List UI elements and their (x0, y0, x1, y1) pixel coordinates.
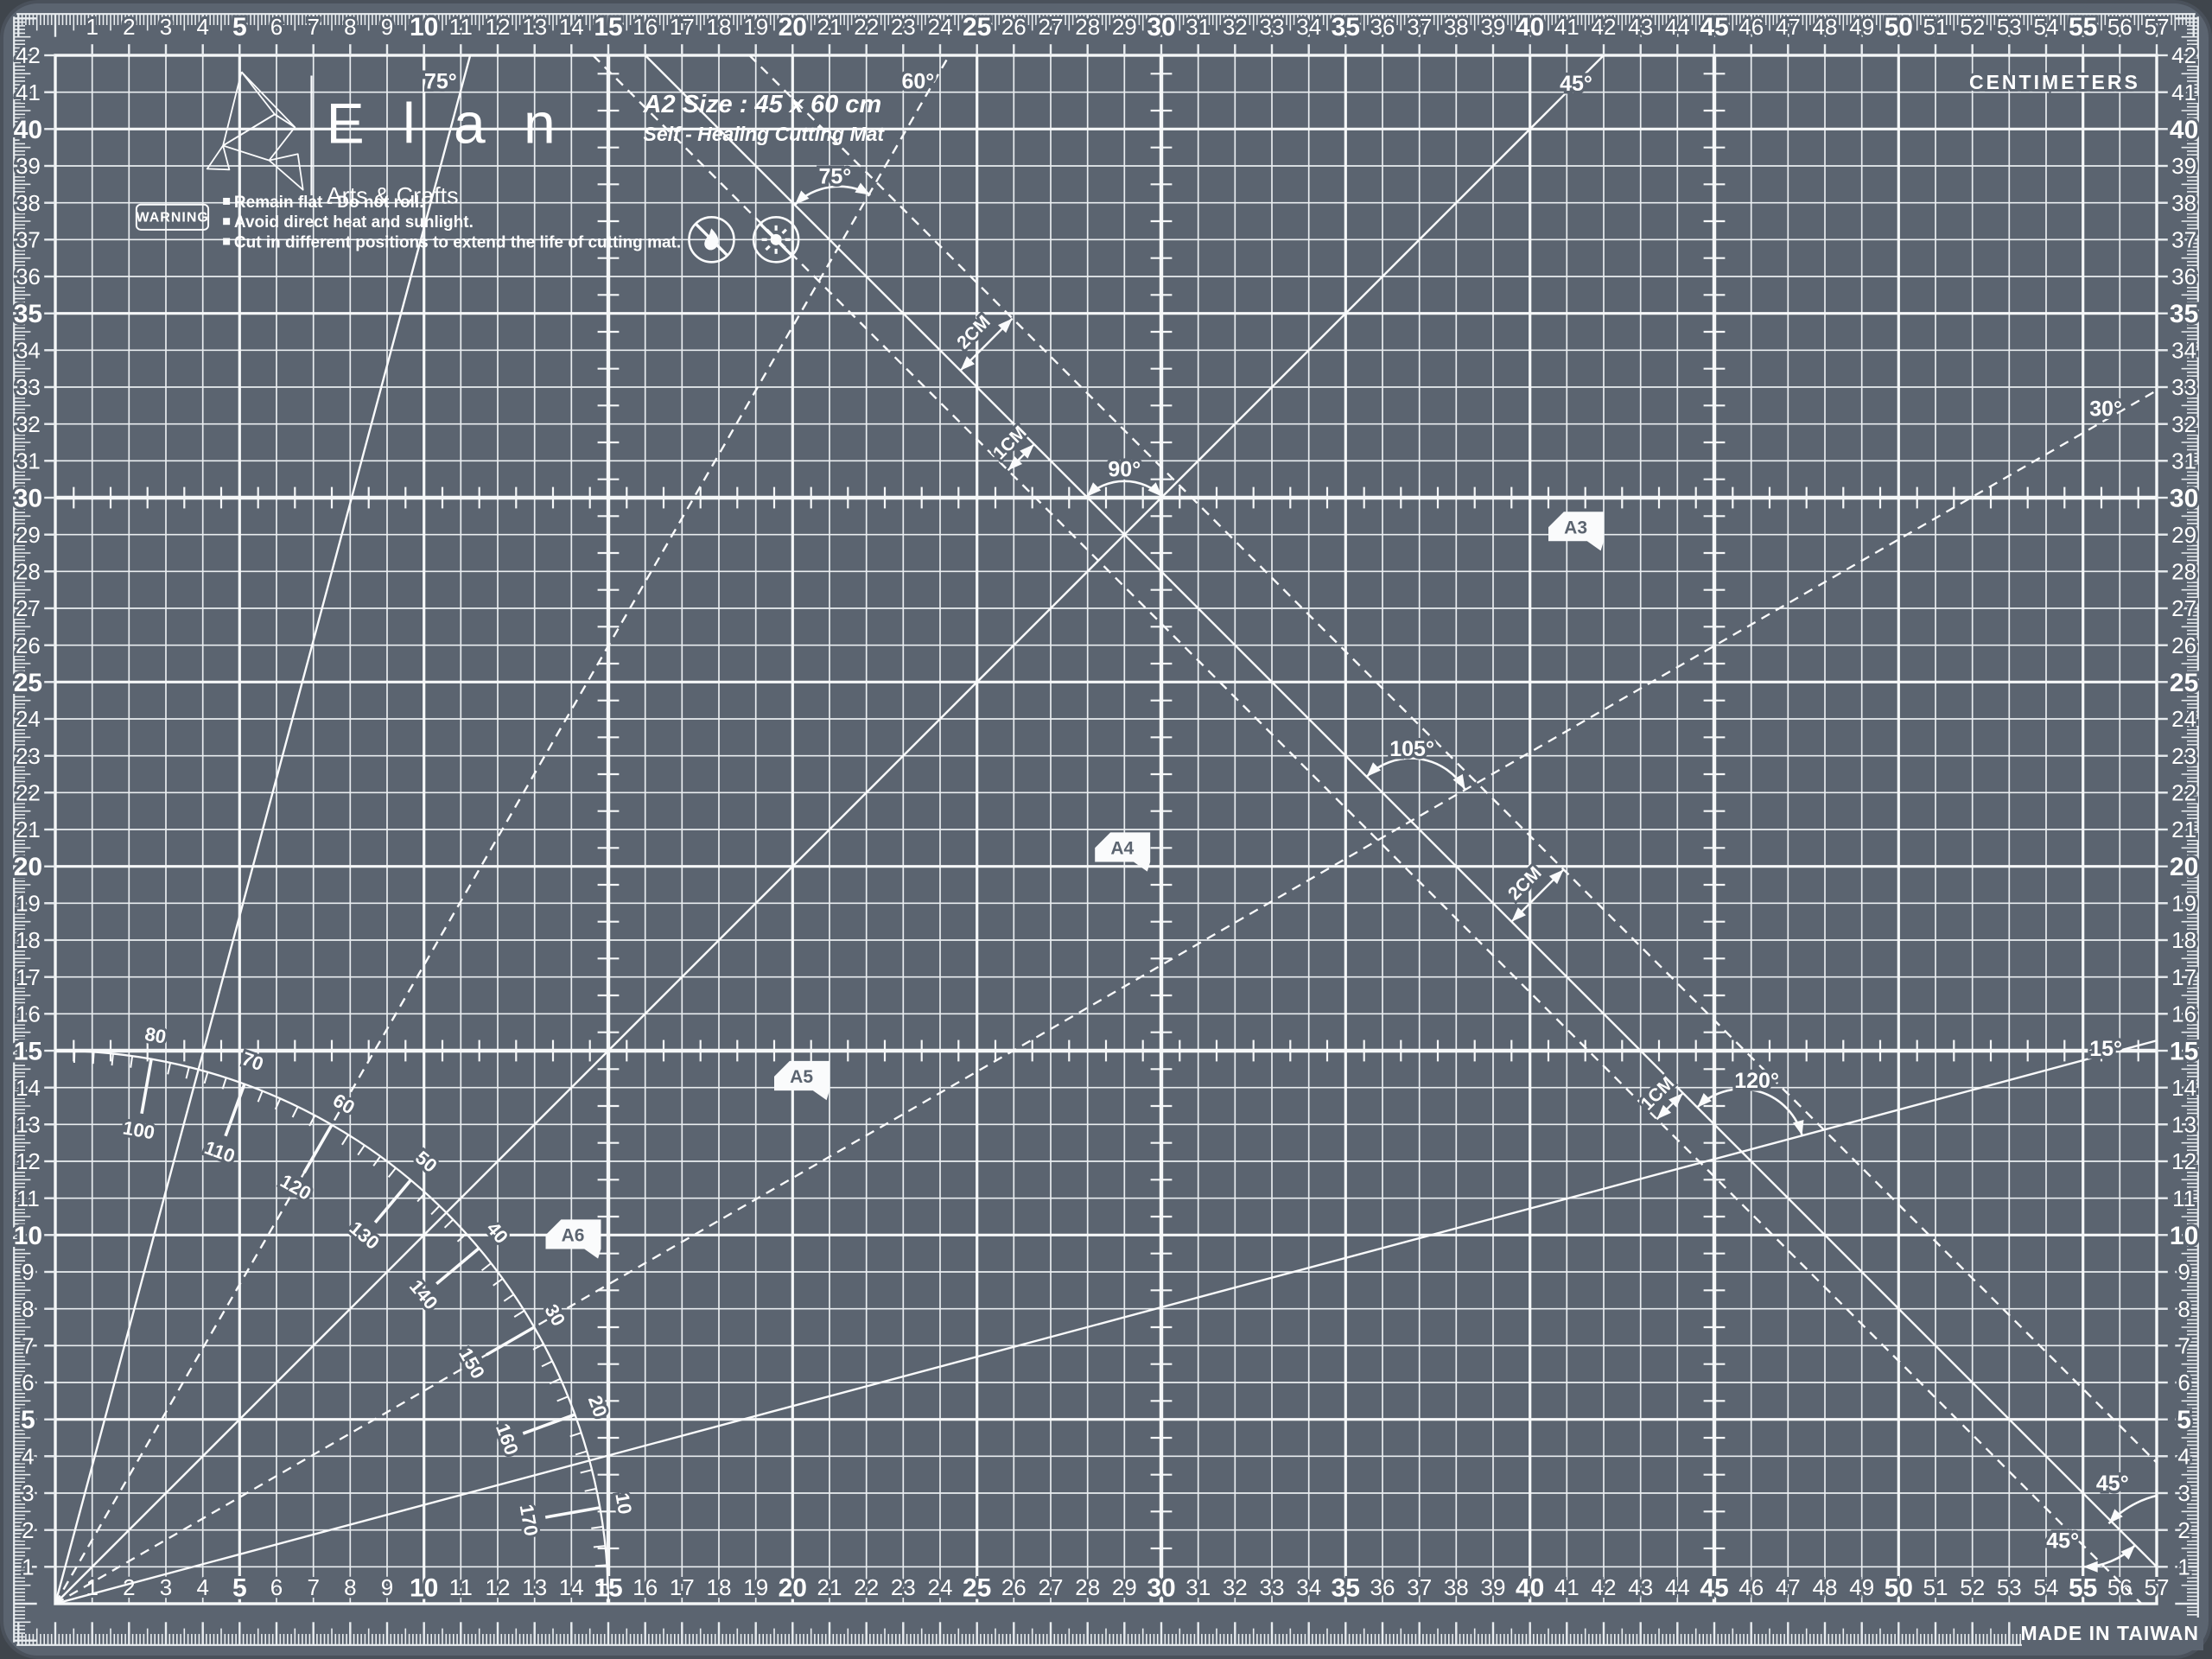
svg-text:13: 13 (16, 1111, 41, 1137)
svg-text:22: 22 (854, 14, 879, 40)
svg-text:7: 7 (307, 14, 319, 40)
svg-text:WARNING: WARNING (137, 211, 209, 226)
svg-text:2: 2 (22, 1517, 34, 1543)
svg-text:38: 38 (2171, 190, 2196, 216)
svg-text:39: 39 (1481, 1574, 1506, 1600)
svg-text:10: 10 (611, 1491, 636, 1516)
svg-text:A5: A5 (790, 1067, 813, 1087)
svg-text:18: 18 (707, 1574, 732, 1600)
svg-text:43: 43 (1628, 1574, 1653, 1600)
svg-text:43: 43 (1628, 14, 1653, 40)
svg-text:28: 28 (16, 558, 41, 584)
svg-text:14: 14 (16, 1075, 41, 1101)
svg-text:26: 26 (1001, 1574, 1027, 1600)
svg-text:27: 27 (16, 595, 41, 621)
svg-text:21: 21 (817, 1574, 842, 1600)
cutting-mat-photo: 1234567891011121314151617181920212223242… (0, 0, 2212, 1659)
svg-text:11: 11 (449, 1574, 473, 1600)
svg-text:MADE IN TAIWAN: MADE IN TAIWAN (2020, 1622, 2199, 1644)
svg-text:16: 16 (632, 1574, 658, 1600)
svg-text:32: 32 (1223, 1574, 1248, 1600)
svg-text:46: 46 (1738, 1574, 1764, 1600)
svg-text:17: 17 (670, 1574, 695, 1600)
svg-text:21: 21 (16, 817, 41, 842)
svg-text:32: 32 (16, 411, 41, 437)
svg-text:20: 20 (779, 13, 807, 41)
svg-text:32: 32 (2171, 411, 2196, 437)
svg-text:30: 30 (14, 485, 42, 513)
svg-text:38: 38 (1444, 1574, 1469, 1600)
svg-text:3: 3 (160, 1574, 172, 1600)
svg-text:52: 52 (1960, 14, 1985, 40)
svg-text:22: 22 (854, 1574, 879, 1600)
svg-text:36: 36 (1370, 1574, 1395, 1600)
svg-text:27: 27 (1039, 14, 1064, 40)
svg-text:41: 41 (2171, 79, 2196, 105)
svg-text:29: 29 (1112, 1574, 1137, 1600)
svg-text:36: 36 (2171, 264, 2196, 289)
svg-text:37: 37 (1407, 1574, 1432, 1600)
svg-text:50: 50 (1885, 13, 1913, 41)
svg-text:5: 5 (232, 13, 247, 41)
svg-text:1: 1 (86, 1574, 98, 1600)
svg-text:2: 2 (123, 1574, 135, 1600)
svg-text:5: 5 (21, 1406, 35, 1434)
svg-text:25: 25 (14, 669, 42, 697)
svg-text:75°: 75° (818, 165, 851, 189)
svg-text:36: 36 (1370, 14, 1395, 40)
svg-text:45°: 45° (1560, 72, 1592, 96)
svg-text:17: 17 (2171, 964, 2196, 990)
svg-text:48: 48 (1813, 1574, 1838, 1600)
svg-text:24: 24 (16, 706, 41, 732)
svg-text:24: 24 (928, 1574, 953, 1600)
svg-text:39: 39 (16, 153, 41, 179)
svg-text:55: 55 (2069, 13, 2097, 41)
svg-text:35: 35 (1332, 13, 1360, 41)
svg-text:12: 12 (486, 1574, 511, 1600)
svg-text:37: 37 (2171, 226, 2196, 252)
svg-text:20: 20 (14, 853, 42, 881)
svg-text:35: 35 (1332, 1573, 1360, 1602)
svg-text:11: 11 (16, 1185, 40, 1211)
svg-text:9: 9 (2177, 1259, 2190, 1285)
svg-text:37: 37 (16, 226, 41, 252)
svg-text:10: 10 (410, 1573, 438, 1602)
svg-text:24: 24 (928, 14, 953, 40)
svg-text:23: 23 (891, 1574, 916, 1600)
svg-text:57: 57 (2145, 1574, 2170, 1600)
svg-text:6: 6 (22, 1370, 34, 1395)
svg-text:23: 23 (16, 743, 41, 769)
svg-text:51: 51 (1923, 14, 1948, 40)
svg-text:45: 45 (1700, 1573, 1728, 1602)
svg-text:45°: 45° (2096, 1471, 2129, 1496)
svg-text:42: 42 (1592, 14, 1617, 40)
svg-text:20: 20 (2170, 853, 2198, 881)
svg-text:6: 6 (270, 14, 283, 40)
svg-text:49: 49 (1849, 1574, 1874, 1600)
svg-text:31: 31 (16, 448, 41, 474)
svg-text:28: 28 (1075, 14, 1100, 40)
svg-text:10: 10 (14, 1222, 42, 1250)
svg-text:41: 41 (16, 79, 41, 105)
svg-text:3: 3 (22, 1480, 34, 1506)
svg-text:28: 28 (2171, 558, 2196, 584)
svg-text:3: 3 (160, 14, 172, 40)
svg-text:16: 16 (16, 1001, 41, 1027)
svg-text:29: 29 (16, 522, 41, 548)
svg-text:9: 9 (22, 1259, 34, 1285)
svg-text:25: 25 (963, 1573, 991, 1602)
svg-text:5: 5 (2177, 1406, 2191, 1434)
svg-text:34: 34 (1296, 1574, 1321, 1600)
svg-text:A3: A3 (1564, 518, 1587, 538)
svg-text:30°: 30° (2089, 397, 2122, 422)
svg-text:44: 44 (1665, 14, 1690, 40)
svg-text:13: 13 (522, 14, 547, 40)
svg-text:2: 2 (2177, 1517, 2190, 1543)
svg-text:39: 39 (1481, 14, 1506, 40)
svg-text:80: 80 (143, 1023, 168, 1048)
svg-text:105°: 105° (1389, 737, 1434, 761)
svg-text:25: 25 (963, 13, 991, 41)
svg-text:10: 10 (2170, 1222, 2198, 1250)
svg-text:40: 40 (1516, 1573, 1544, 1602)
svg-text:55: 55 (2069, 1573, 2097, 1602)
svg-text:8: 8 (344, 1574, 356, 1600)
svg-text:28: 28 (1075, 1574, 1100, 1600)
svg-text:14: 14 (559, 1574, 584, 1600)
svg-text:22: 22 (2171, 779, 2196, 805)
svg-text:2: 2 (123, 14, 135, 40)
svg-text:6: 6 (270, 1574, 283, 1600)
svg-text:A2 Size : 45 x 60 cm: A2 Size : 45 x 60 cm (643, 91, 882, 118)
svg-text:53: 53 (1997, 1574, 2022, 1600)
svg-text:42: 42 (1592, 1574, 1617, 1600)
svg-text:15: 15 (594, 13, 622, 41)
svg-text:26: 26 (2171, 632, 2196, 658)
svg-text:15: 15 (14, 1038, 42, 1066)
svg-text:41: 41 (1554, 1574, 1580, 1600)
svg-text:39: 39 (2171, 153, 2196, 179)
svg-text:31: 31 (2171, 448, 2196, 474)
svg-text:31: 31 (1185, 14, 1211, 40)
svg-text:44: 44 (1665, 1574, 1690, 1600)
svg-text:1: 1 (2177, 1554, 2190, 1580)
svg-text:4: 4 (196, 14, 208, 40)
svg-text:CENTIMETERS: CENTIMETERS (1969, 71, 2140, 93)
svg-text:90°: 90° (1108, 458, 1141, 482)
svg-text:21: 21 (817, 14, 842, 40)
svg-text:37: 37 (1407, 14, 1432, 40)
svg-text:47: 47 (1776, 14, 1801, 40)
svg-text:38: 38 (16, 190, 41, 216)
svg-text:7: 7 (307, 1574, 319, 1600)
svg-text:19: 19 (743, 1574, 768, 1600)
made-in-label: MADE IN TAIWAN (2020, 1618, 2203, 1650)
svg-text:4: 4 (2177, 1443, 2190, 1469)
svg-text:54: 54 (2034, 14, 2059, 40)
svg-text:120°: 120° (1734, 1069, 1779, 1093)
svg-text:33: 33 (1260, 1574, 1285, 1600)
svg-text:13: 13 (2171, 1111, 2196, 1137)
svg-text:35: 35 (14, 300, 42, 328)
svg-text:15: 15 (2170, 1038, 2198, 1066)
svg-text:47: 47 (1776, 1574, 1801, 1600)
svg-text:30: 30 (1147, 1573, 1175, 1602)
svg-text:12: 12 (486, 14, 511, 40)
svg-text:18: 18 (16, 927, 41, 953)
svg-text:23: 23 (2171, 743, 2196, 769)
svg-text:51: 51 (1923, 1574, 1948, 1600)
svg-text:9: 9 (381, 1574, 393, 1600)
svg-text:6: 6 (2177, 1370, 2190, 1395)
svg-text:46: 46 (1738, 14, 1764, 40)
svg-text:45: 45 (1700, 13, 1728, 41)
svg-text:9: 9 (381, 14, 393, 40)
svg-text:19: 19 (2171, 890, 2196, 916)
svg-text:8: 8 (2177, 1296, 2190, 1322)
svg-text:27: 27 (2171, 595, 2196, 621)
svg-text:26: 26 (1001, 14, 1027, 40)
svg-text:34: 34 (1296, 14, 1321, 40)
svg-text:53: 53 (1997, 14, 2022, 40)
svg-text:1: 1 (86, 14, 98, 40)
svg-text:27: 27 (1039, 1574, 1064, 1600)
svg-text:38: 38 (1444, 14, 1469, 40)
svg-text:31: 31 (1185, 1574, 1211, 1600)
svg-text:42: 42 (16, 42, 41, 68)
svg-text:Remain flat - Do not roll.: Remain flat - Do not roll. (234, 194, 424, 212)
svg-text:4: 4 (22, 1443, 34, 1469)
svg-text:17: 17 (670, 14, 695, 40)
svg-text:54: 54 (2034, 1574, 2059, 1600)
svg-text:18: 18 (2171, 927, 2196, 953)
svg-text:A6: A6 (562, 1226, 585, 1246)
svg-text:40: 40 (14, 116, 42, 144)
svg-text:26: 26 (16, 632, 41, 658)
svg-text:25: 25 (2170, 669, 2198, 697)
svg-text:4: 4 (196, 1574, 208, 1600)
svg-text:56: 56 (2107, 1574, 2133, 1600)
svg-text:15°: 15° (2089, 1037, 2122, 1061)
svg-text:Avoid direct heat and sunlight: Avoid direct heat and sunlight. (234, 213, 474, 232)
svg-text:33: 33 (1260, 14, 1285, 40)
svg-text:14: 14 (2171, 1075, 2196, 1101)
svg-text:12: 12 (2171, 1148, 2196, 1174)
svg-text:41: 41 (1554, 14, 1580, 40)
svg-text:32: 32 (1223, 14, 1248, 40)
svg-text:14: 14 (559, 14, 584, 40)
svg-text:1: 1 (22, 1554, 34, 1580)
svg-text:17: 17 (16, 964, 41, 990)
svg-text:33: 33 (16, 374, 41, 400)
svg-text:29: 29 (1112, 14, 1137, 40)
svg-text:13: 13 (522, 1574, 547, 1600)
svg-text:11: 11 (2172, 1185, 2196, 1211)
svg-text:40: 40 (1516, 13, 1544, 41)
svg-text:10: 10 (410, 13, 438, 41)
cutting-mat: 1234567891011121314151617181920212223242… (0, 0, 2212, 1659)
svg-text:7: 7 (2177, 1332, 2190, 1358)
svg-text:7: 7 (22, 1332, 34, 1358)
svg-text:29: 29 (2171, 522, 2196, 548)
svg-text:50: 50 (1885, 1573, 1913, 1602)
svg-text:A4: A4 (1110, 839, 1134, 859)
svg-text:E l a n: E l a n (327, 92, 567, 156)
svg-text:22: 22 (16, 779, 41, 805)
svg-text:30: 30 (2170, 485, 2198, 513)
svg-text:21: 21 (2171, 817, 2196, 842)
svg-text:40: 40 (2170, 116, 2198, 144)
svg-text:Self - Healing Cutting Mat: Self - Healing Cutting Mat (644, 123, 886, 145)
svg-text:23: 23 (891, 14, 916, 40)
svg-text:12: 12 (16, 1148, 41, 1174)
svg-text:30: 30 (1147, 13, 1175, 41)
svg-text:19: 19 (743, 14, 768, 40)
svg-text:11: 11 (449, 14, 473, 40)
svg-text:34: 34 (16, 337, 41, 363)
svg-text:16: 16 (2171, 1001, 2196, 1027)
svg-text:52: 52 (1960, 1574, 1985, 1600)
svg-text:57: 57 (2145, 14, 2170, 40)
svg-text:48: 48 (1813, 14, 1838, 40)
svg-text:34: 34 (2171, 337, 2196, 363)
svg-text:19: 19 (16, 890, 41, 916)
svg-text:8: 8 (344, 14, 356, 40)
svg-text:45°: 45° (2046, 1529, 2079, 1553)
svg-text:20: 20 (779, 1573, 807, 1602)
svg-text:18: 18 (707, 14, 732, 40)
svg-text:75°: 75° (424, 70, 457, 94)
svg-text:36: 36 (16, 264, 41, 289)
svg-text:5: 5 (232, 1573, 247, 1602)
svg-text:56: 56 (2107, 14, 2133, 40)
svg-text:8: 8 (22, 1296, 34, 1322)
svg-text:49: 49 (1849, 14, 1874, 40)
svg-text:3: 3 (2177, 1480, 2190, 1506)
svg-text:33: 33 (2171, 374, 2196, 400)
svg-text:60°: 60° (901, 70, 934, 94)
svg-text:35: 35 (2170, 300, 2198, 328)
svg-text:Cut in different positions to: Cut in different positions to extend the… (234, 233, 681, 251)
svg-text:42: 42 (2171, 42, 2196, 68)
svg-text:24: 24 (2171, 706, 2196, 732)
svg-text:16: 16 (632, 14, 658, 40)
